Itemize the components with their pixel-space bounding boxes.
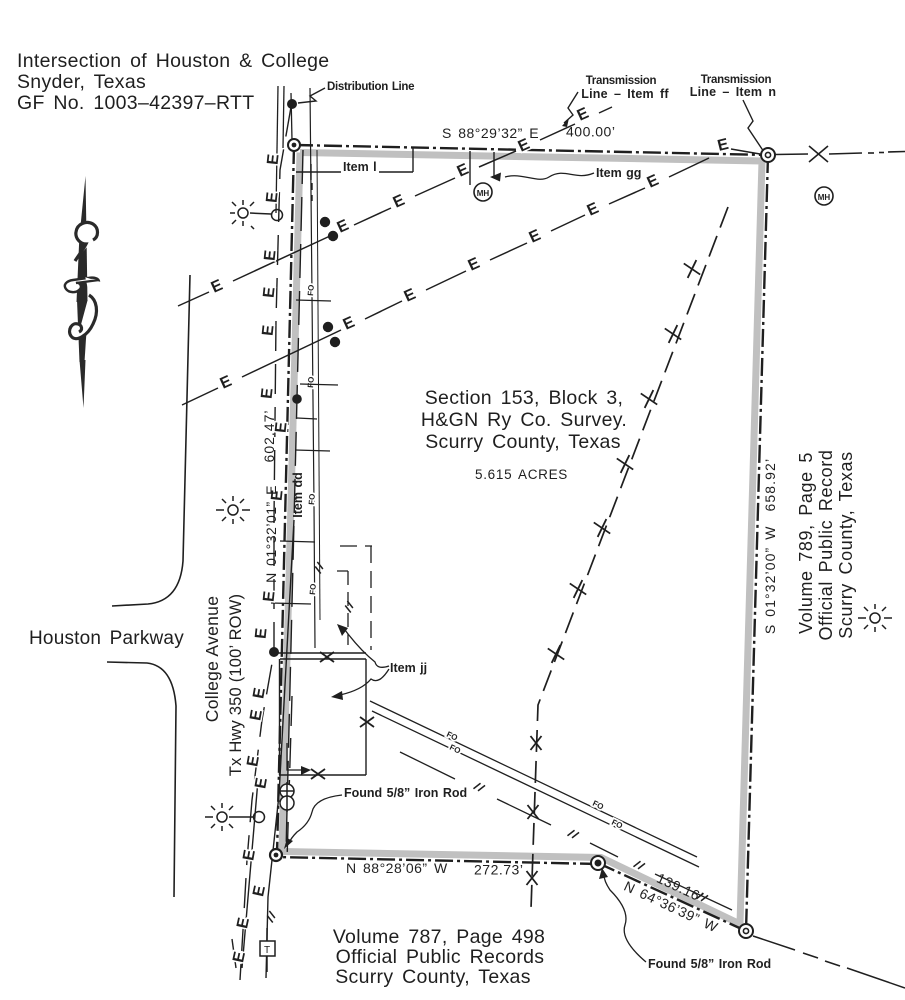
svg-text:Found 5/8” Iron Rod: Found 5/8” Iron Rod: [344, 786, 467, 800]
svg-text:N 01°32’01” E: N 01°32’01” E: [263, 485, 279, 583]
svg-text:E: E: [262, 249, 280, 262]
svg-text:H&GN Ry Co. Survey.: H&GN Ry Co. Survey.: [421, 409, 627, 431]
svg-text:FO: FO: [308, 583, 318, 595]
svg-text:Official Public Record: Official Public Record: [816, 450, 836, 641]
svg-text:MH: MH: [477, 189, 490, 198]
svg-text:FO: FO: [306, 284, 316, 296]
svg-text:E: E: [261, 590, 279, 603]
svg-text:Volume 789, Page 5: Volume 789, Page 5: [796, 452, 816, 634]
svg-text:272.73’: 272.73’: [474, 862, 523, 878]
svg-text:S 01°32’00” W 658.92’: S 01°32’00” W 658.92’: [762, 458, 778, 634]
svg-text:Section 153, Block 3,: Section 153, Block 3,: [425, 387, 624, 409]
svg-text:Official Public Records: Official Public Records: [336, 946, 545, 968]
svg-text:E: E: [260, 324, 278, 337]
svg-text:Tx Hwy 350 (100’ ROW): Tx Hwy 350 (100’ ROW): [227, 594, 245, 776]
svg-text:E: E: [264, 191, 282, 204]
svg-text:Item jj: Item jj: [390, 661, 427, 675]
svg-text:E: E: [253, 627, 271, 640]
svg-text:College Avenue: College Avenue: [202, 596, 222, 722]
svg-text:5.615 ACRES: 5.615 ACRES: [475, 467, 568, 482]
svg-text:Houston Parkway: Houston Parkway: [29, 628, 184, 649]
svg-text:T: T: [264, 945, 270, 956]
svg-text:602.47’: 602.47’: [261, 410, 277, 463]
svg-text:E: E: [259, 387, 277, 400]
svg-text:Item l: Item l: [343, 160, 377, 174]
svg-text:400.00’: 400.00’: [566, 124, 615, 140]
svg-text:Found 5/8” Iron Rod: Found 5/8” Iron Rod: [648, 957, 771, 971]
svg-text:FO: FO: [306, 376, 316, 388]
svg-text:GF No. 1003–42397–RTT: GF No. 1003–42397–RTT: [17, 92, 254, 114]
svg-text:Snyder, Texas: Snyder, Texas: [17, 71, 146, 93]
svg-text:Scurry County, Texas: Scurry County, Texas: [335, 966, 531, 988]
svg-text:E: E: [265, 153, 283, 166]
svg-text:Transmission: Transmission: [586, 75, 657, 87]
svg-text:Volume 787, Page 498: Volume 787, Page 498: [333, 926, 545, 948]
svg-text:Line – Item n: Line – Item n: [690, 85, 777, 99]
svg-text:Scurry County, Texas: Scurry County, Texas: [425, 431, 621, 453]
svg-text:Item gg: Item gg: [596, 166, 641, 180]
svg-text:Item dd: Item dd: [291, 472, 305, 517]
svg-text:Scurry County, Texas: Scurry County, Texas: [836, 451, 856, 638]
svg-text:FO: FO: [307, 493, 317, 505]
svg-text:Line – Item ff: Line – Item ff: [581, 87, 669, 101]
svg-text:Distribution Line: Distribution Line: [327, 81, 414, 93]
svg-text:E: E: [261, 286, 279, 299]
svg-text:Intersection of Houston &: Intersection of Houston & College: [17, 50, 329, 72]
svg-text:N 88°28’06” W: N 88°28’06” W: [346, 860, 448, 876]
svg-text:MH: MH: [818, 193, 831, 202]
